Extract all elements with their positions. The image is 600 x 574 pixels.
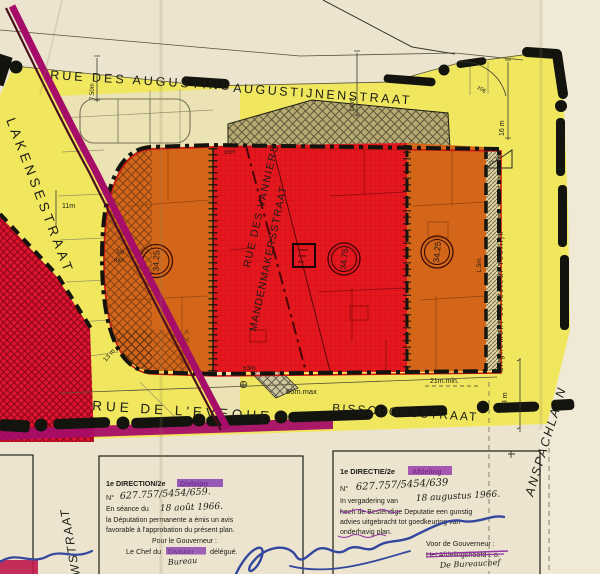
- fr-line7c: délégué.: [210, 547, 238, 556]
- dim-3m-min: min.: [114, 258, 126, 264]
- fr-line5: favorable à l'approbation du présent pla…: [106, 527, 235, 534]
- elevation-value-right: 34.25: [431, 241, 443, 263]
- fr-line4: la Députation permanente a émis un avis: [106, 517, 234, 524]
- city-plan-map: 34.25 34.75 34.25 RUE DES AUGUSTINS AUGU…: [0, 0, 600, 574]
- nl-no-label: N°: [340, 484, 348, 493]
- dim-750m: 7.50m: [90, 83, 96, 100]
- dim-pm3-bottom: ±3m: [243, 365, 256, 372]
- fr-line1-scribble: [177, 479, 223, 487]
- dim-11m: 11m: [62, 203, 75, 210]
- fr-line1a: 1e DIRECTION/2e: [106, 479, 166, 488]
- dim-66m-max: 66m.max: [286, 387, 317, 396]
- dim-pm3-top: ±3m: [224, 149, 236, 156]
- dim-18m: 18 m: [502, 392, 509, 408]
- zone-red-grid: [213, 143, 407, 372]
- nl-line3a: In vergadering van: [340, 498, 398, 505]
- dim-14m: 14 m: [349, 98, 356, 112]
- dim-21m-min: 21m.min.: [430, 378, 459, 385]
- fr-line3b: 18 août 1966.: [160, 501, 224, 514]
- magenta-mark-bottom-left: [0, 560, 38, 574]
- fr-line7a: Le Chef du: [126, 547, 161, 556]
- annotation-collector: alignement collecteur rooilijn: [498, 230, 505, 372]
- nl-line1a: 1e DIRECTIE/2e: [340, 467, 395, 476]
- zone-orange-right: [407, 143, 486, 372]
- nl-line7: Voor de Gouverneur :: [426, 539, 495, 548]
- dim-16m: 16 m: [499, 120, 506, 136]
- nl-line1-scribble: [408, 466, 452, 475]
- fr-line3a: En séance du: [106, 506, 149, 513]
- scanned-city-plan: 34.25 34.75 34.25 RUE DES AUGUSTINS AUGU…: [0, 0, 600, 574]
- fr-no-label: N°: [106, 493, 114, 502]
- dim-l5m: L.5m.: [477, 257, 483, 272]
- fr-line7-scribble: [166, 547, 206, 555]
- dim-3m: 3m: [116, 250, 124, 256]
